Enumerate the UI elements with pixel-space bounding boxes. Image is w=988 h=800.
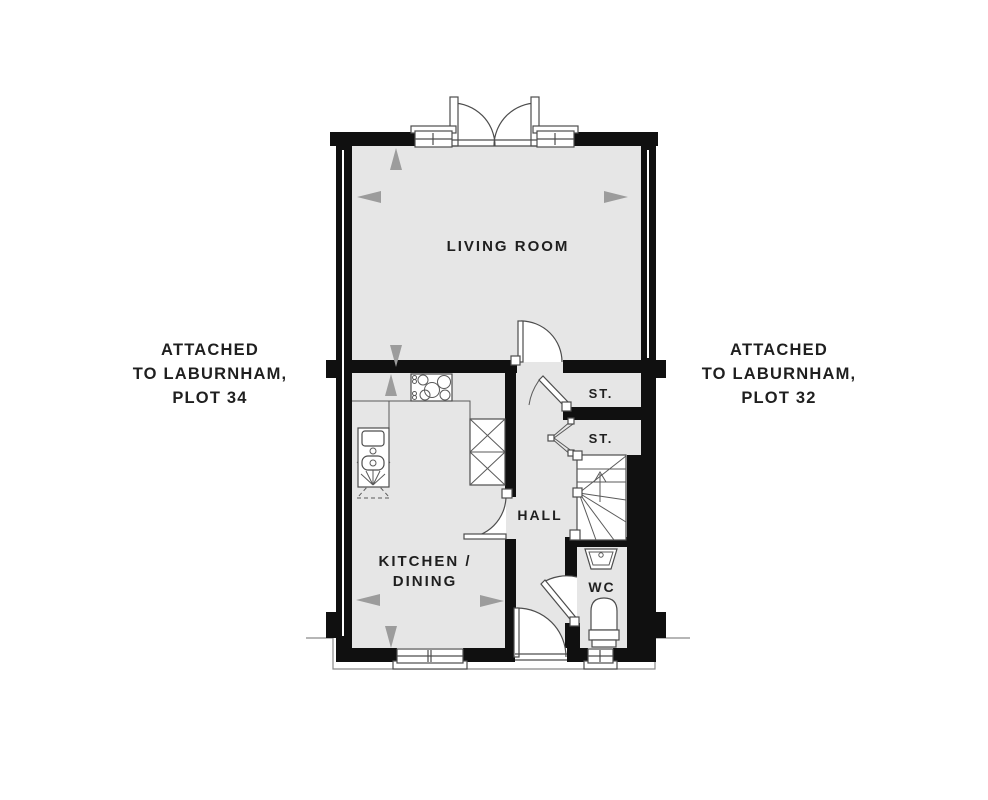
toilet (589, 598, 619, 647)
floor-plan-page: LIVING ROOM KITCHEN / DINING HALL ST. ST… (0, 0, 988, 800)
storage-top-label: ST. (589, 386, 614, 401)
living-room-label: LIVING ROOM (447, 238, 570, 255)
note-left-line1: ATTACHED (95, 338, 325, 362)
note-right-line1: ATTACHED (664, 338, 894, 362)
hall-label: HALL (517, 507, 562, 523)
attached-plot-34-note: ATTACHED TO LABURNHAM, PLOT 34 (95, 338, 325, 410)
wash-basin (585, 549, 617, 569)
note-left-line2: TO LABURNHAM, (95, 362, 325, 386)
french-doors (450, 97, 539, 146)
kitchen-label-line1: KITCHEN / (379, 553, 472, 570)
window-living-right (533, 126, 578, 147)
note-left-line3: PLOT 34 (95, 386, 325, 410)
note-right-line2: TO LABURNHAM, (664, 362, 894, 386)
wc-label: WC (588, 579, 615, 595)
appliance-unit (470, 419, 505, 485)
hob (411, 374, 452, 401)
window-living-left (411, 126, 456, 147)
note-right-line3: PLOT 32 (664, 386, 894, 410)
kitchen-sink (357, 428, 390, 498)
staircase (570, 451, 626, 540)
window-kitchen (393, 649, 467, 669)
storage-bottom-label: ST. (589, 431, 614, 446)
window-wc (584, 649, 617, 669)
attached-plot-32-note: ATTACHED TO LABURNHAM, PLOT 32 (664, 338, 894, 410)
kitchen-label-line2: DINING (393, 573, 458, 590)
